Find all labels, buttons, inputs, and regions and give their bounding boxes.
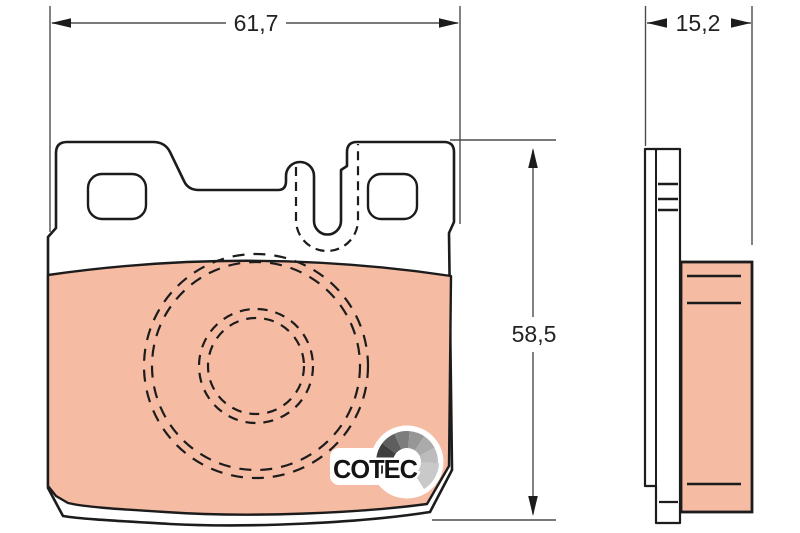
brake-pad-technical-drawing: COTEC 61,7 15,2 [0, 0, 800, 533]
width-dimension-value: 61,7 [234, 10, 279, 36]
backing-plate-side-outline [645, 149, 680, 523]
logo-wordmark: COTEC [333, 454, 418, 484]
friction-material-side [681, 262, 752, 512]
width-arrow-left [51, 18, 71, 28]
side-view [645, 149, 752, 523]
width-arrow-right [439, 18, 459, 28]
left-mounting-hole [88, 174, 146, 219]
thickness-arrow-left [647, 18, 667, 28]
thickness-dimension-value: 15,2 [676, 10, 721, 36]
drawing-canvas: COTEC 61,7 15,2 [0, 0, 800, 533]
right-mounting-hole [368, 174, 417, 219]
thickness-arrow-right [731, 18, 751, 28]
front-view: COTEC [48, 142, 454, 525]
height-arrow-up [528, 148, 538, 168]
height-dimension-value: 58,5 [512, 321, 557, 347]
height-arrow-down [528, 496, 538, 516]
